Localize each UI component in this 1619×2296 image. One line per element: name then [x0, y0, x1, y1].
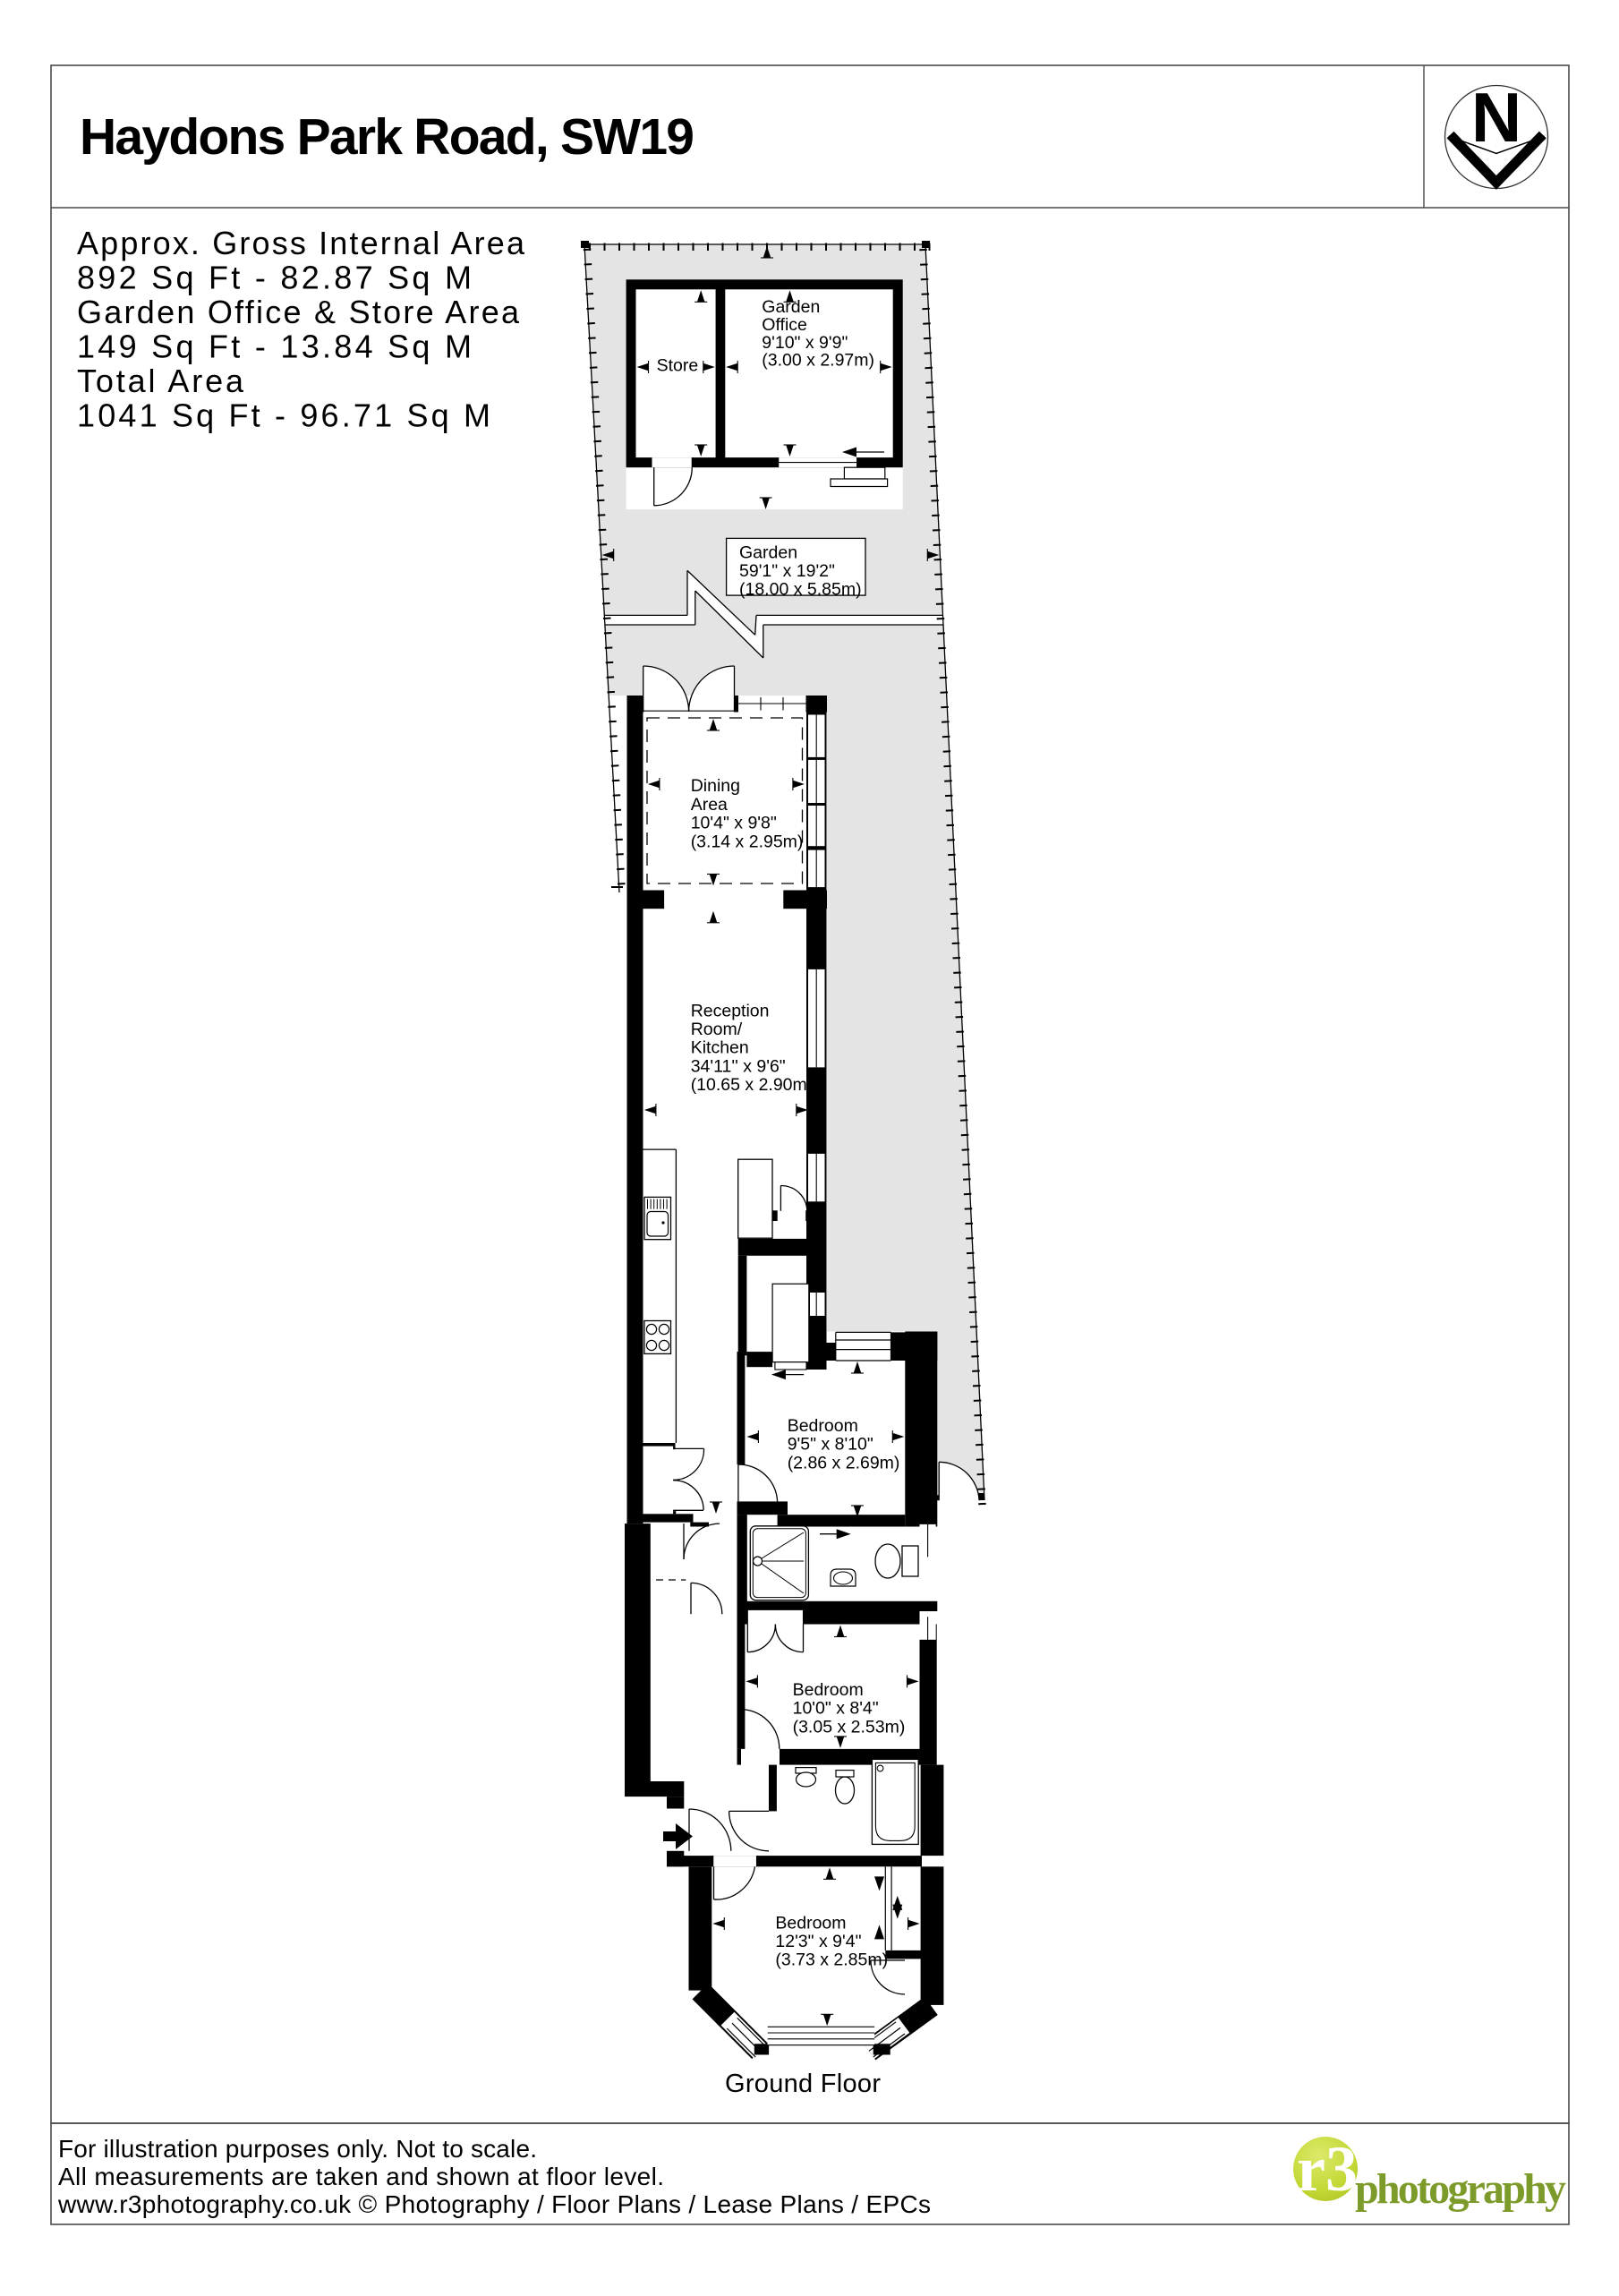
svg-text:All measurements are taken and: All measurements are taken and shown at … [58, 2163, 664, 2190]
svg-text:Dining: Dining [691, 776, 740, 796]
svg-text:N: N [1471, 78, 1521, 157]
svg-text:Haydons Park Road, SW19: Haydons Park Road, SW19 [80, 108, 694, 166]
svg-text:Garden Office & Store Area: Garden Office & Store Area [77, 294, 520, 330]
svg-text:Store: Store [657, 355, 699, 375]
svg-text:149 Sq Ft - 13.84 Sq M: 149 Sq Ft - 13.84 Sq M [77, 328, 472, 364]
svg-text:Area: Area [691, 795, 728, 815]
svg-text:For illustration purposes only: For illustration purposes only. Not to s… [58, 2135, 537, 2163]
svg-text:Bedroom: Bedroom [775, 1913, 846, 1933]
svg-text:Ground Floor: Ground Floor [725, 2070, 881, 2098]
svg-text:(10.65 x 2.90m): (10.65 x 2.90m) [691, 1075, 814, 1095]
svg-text:Reception: Reception [691, 1001, 770, 1020]
svg-text:Bedroom: Bedroom [793, 1680, 864, 1700]
svg-text:Room/: Room/ [691, 1020, 743, 1039]
svg-text:34'11'' x 9'6": 34'11'' x 9'6" [691, 1056, 786, 1076]
svg-text:9'5" x 8'10": 9'5" x 8'10" [788, 1435, 873, 1455]
svg-text:r3: r3 [1297, 2133, 1358, 2205]
svg-text:10'0" x 8'4": 10'0" x 8'4" [793, 1699, 879, 1719]
svg-text:9'10" x 9'9": 9'10" x 9'9" [762, 333, 848, 353]
svg-text:(3.14 x 2.95m): (3.14 x 2.95m) [691, 832, 804, 851]
svg-text:www.r3photography.co.uk © Phot: www.r3photography.co.uk © Photography / … [57, 2190, 931, 2218]
svg-text:photography: photography [1355, 2165, 1566, 2213]
svg-text:10'4" x 9'8": 10'4" x 9'8" [691, 814, 777, 833]
svg-text:Total Area: Total Area [77, 363, 244, 399]
svg-text:Bedroom: Bedroom [788, 1416, 858, 1436]
svg-text:(3.00 x 2.97m): (3.00 x 2.97m) [762, 351, 874, 371]
svg-text:Approx. Gross Internal Area: Approx. Gross Internal Area [77, 225, 525, 261]
svg-text:(2.86 x 2.69m): (2.86 x 2.69m) [788, 1453, 900, 1472]
svg-text:12'3" x 9'4": 12'3" x 9'4" [775, 1932, 861, 1951]
svg-text:(3.05 x 2.53m): (3.05 x 2.53m) [793, 1717, 906, 1737]
svg-text:Office: Office [762, 315, 807, 335]
svg-text:Garden: Garden [739, 543, 797, 563]
svg-text:(18.00 x 5.85m): (18.00 x 5.85m) [739, 580, 862, 600]
svg-text:892 Sq Ft - 82.87 Sq M: 892 Sq Ft - 82.87 Sq M [77, 259, 472, 295]
svg-text:Kitchen: Kitchen [691, 1038, 749, 1058]
svg-text:59'1" x 19'2": 59'1" x 19'2" [739, 561, 835, 581]
